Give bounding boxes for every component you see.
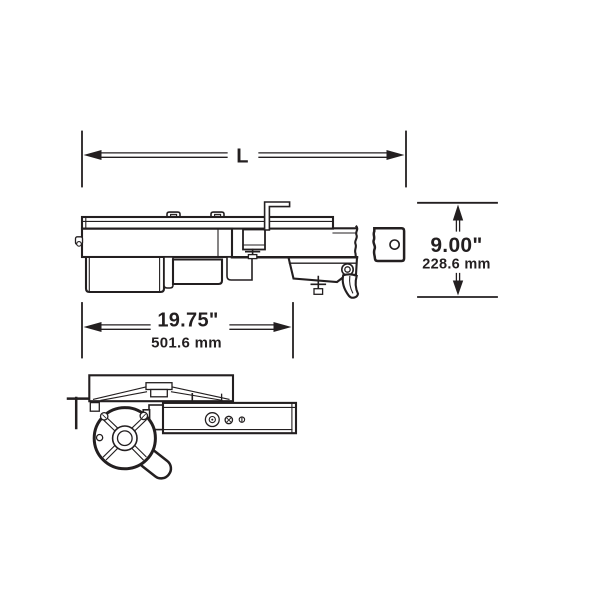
pulley-hub-inner: [118, 431, 133, 446]
side-screw-head: [77, 242, 82, 247]
dimension-line-right: [230, 325, 274, 329]
dimension-head-length: 19.75" 501.6 mm: [82, 303, 293, 358]
trolley-body: [227, 257, 252, 280]
dimension-line-lower: [456, 274, 459, 282]
arrowhead-right-icon: [387, 150, 405, 160]
mount-tab: [90, 403, 99, 412]
rail: [82, 217, 333, 229]
dimension-length-overall: L: [82, 132, 406, 187]
dimension-head-mm: 501.6 mm: [151, 335, 222, 352]
bracket-bolt-center: [345, 267, 350, 272]
dimension-head-inches: 19.75": [157, 310, 218, 332]
motor-housing: [82, 229, 232, 257]
dimension-height-inches: 9.00": [430, 234, 482, 257]
dimension-line-right: [259, 153, 387, 157]
plate-hub-upper: [146, 383, 172, 390]
arrowhead-up-icon: [453, 205, 463, 221]
dimension-line-upper: [456, 220, 459, 232]
rail-end-hole: [390, 240, 399, 249]
arrowhead-down-icon: [453, 281, 463, 296]
plate-hub-lower: [151, 390, 168, 397]
lower-box-middle: [164, 257, 173, 288]
lower-box-right: [173, 260, 222, 285]
bracket-tbolt-foot: [314, 289, 323, 295]
dimension-height: 9.00" 228.6 mm: [418, 203, 497, 297]
arrowhead-left-icon: [84, 150, 102, 160]
trolley-box: [243, 230, 265, 250]
pulley-hole: [97, 435, 103, 441]
trolley-screw-foot: [248, 255, 256, 259]
side-view: [76, 202, 405, 298]
beam-break-line: [355, 227, 357, 258]
dimension-line-left: [101, 153, 227, 157]
connector-jack-dot: [211, 419, 213, 421]
bottom-view: [68, 375, 296, 482]
dimension-line-left: [101, 325, 150, 329]
lower-box-left: [86, 257, 164, 292]
drawing-canvas: L: [0, 0, 600, 600]
dimension-height-mm: 228.6 mm: [422, 257, 491, 273]
technical-drawing: L: [0, 0, 600, 600]
arrowhead-right-icon: [274, 322, 292, 332]
arrowhead-left-icon: [84, 322, 102, 332]
dimension-label-length: L: [236, 146, 249, 168]
